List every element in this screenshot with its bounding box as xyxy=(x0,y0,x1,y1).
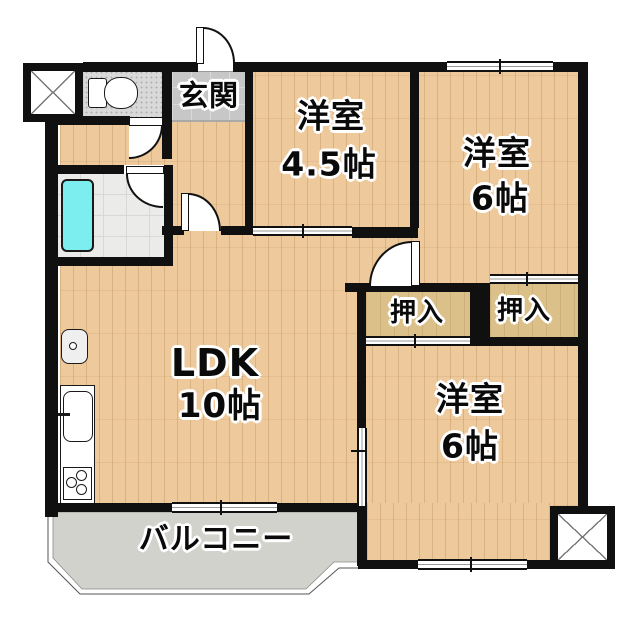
pipe-shaft-box-top-left xyxy=(23,63,83,122)
faucet-icon xyxy=(57,413,70,416)
floor-plan: 玄関 洋室 4.5帖 洋室 6帖 押入 押入 LDK 10帖 洋室 6帖 バルコ… xyxy=(0,0,640,621)
pipe-shaft-box-bottom-right xyxy=(550,506,615,568)
sliding-door-tick xyxy=(351,450,366,452)
kitchen-sink-icon xyxy=(63,391,93,442)
window-tick xyxy=(499,59,501,74)
closet-right-sliding-door xyxy=(490,274,578,284)
room-label-ldk: LDK xyxy=(171,344,259,382)
wood-floor-bottom-room xyxy=(367,503,553,563)
wall xyxy=(357,337,366,428)
bathroom-door-leaf xyxy=(126,166,164,174)
wall xyxy=(83,62,198,72)
room-size-ldk: 10帖 xyxy=(178,389,262,423)
balcony-label: バルコニー xyxy=(139,525,293,555)
room-size-western-4-5: 4.5帖 xyxy=(281,148,376,181)
wall xyxy=(578,62,588,507)
sliding-door-tick xyxy=(526,272,528,286)
wall xyxy=(162,62,172,159)
room-label-western-6-top: 洋室 xyxy=(463,137,531,170)
sliding-door-tick xyxy=(414,334,416,348)
window-tick xyxy=(470,557,472,572)
wall xyxy=(470,283,490,345)
wall xyxy=(277,503,367,512)
wall xyxy=(45,116,130,125)
wall xyxy=(245,62,253,235)
wall xyxy=(352,227,418,238)
balcony-window xyxy=(172,502,277,513)
room-size-western-6-top: 6帖 xyxy=(471,182,529,215)
window xyxy=(418,559,527,570)
wall xyxy=(410,62,419,228)
stove-burner-icon xyxy=(76,470,87,481)
washbasin-drain-icon xyxy=(69,342,77,350)
toilet-bowl-icon xyxy=(104,77,138,109)
room-label-western-6-bottom: 洋室 xyxy=(436,383,504,416)
wall xyxy=(470,337,588,346)
window-tick xyxy=(220,500,222,515)
wall xyxy=(221,226,253,235)
ldk-door-leaf xyxy=(181,193,189,231)
closet-left-label: 押入 xyxy=(390,300,444,326)
bedroom-door-leaf xyxy=(411,241,420,286)
wall xyxy=(357,283,366,337)
closet-right-label: 押入 xyxy=(497,298,551,324)
wall xyxy=(48,503,172,512)
entry-step-line xyxy=(172,120,245,122)
wall xyxy=(357,506,367,566)
closet-left-sliding-door xyxy=(366,336,470,346)
sliding-door-tick xyxy=(302,224,304,238)
stove-burner-icon xyxy=(76,484,87,495)
room-size-western-6-bottom: 6帖 xyxy=(441,430,499,463)
room-label-western-4-5: 洋室 xyxy=(297,100,365,133)
entry-door-leaf xyxy=(196,27,204,64)
toilet-door-leaf xyxy=(129,117,163,126)
wall xyxy=(358,560,418,569)
stove-burner-icon xyxy=(66,477,77,488)
room-label-genkan: 玄関 xyxy=(179,82,239,111)
sliding-door-vertical xyxy=(357,428,367,506)
wall xyxy=(527,560,615,569)
